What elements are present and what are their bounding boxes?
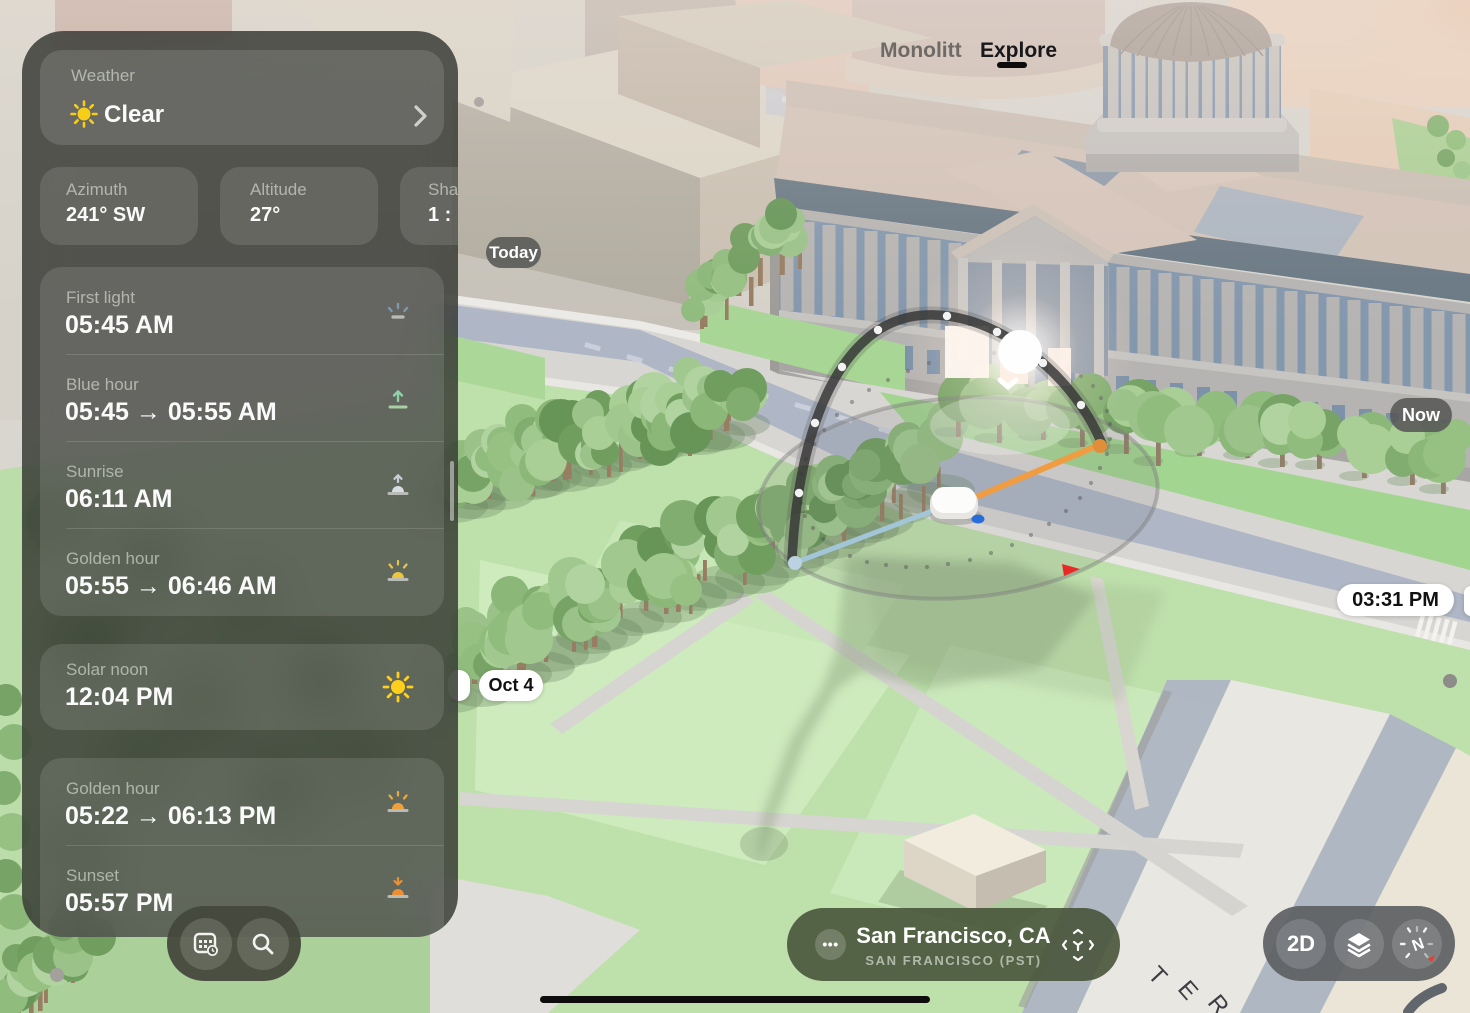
- svg-text:N: N: [1410, 935, 1427, 955]
